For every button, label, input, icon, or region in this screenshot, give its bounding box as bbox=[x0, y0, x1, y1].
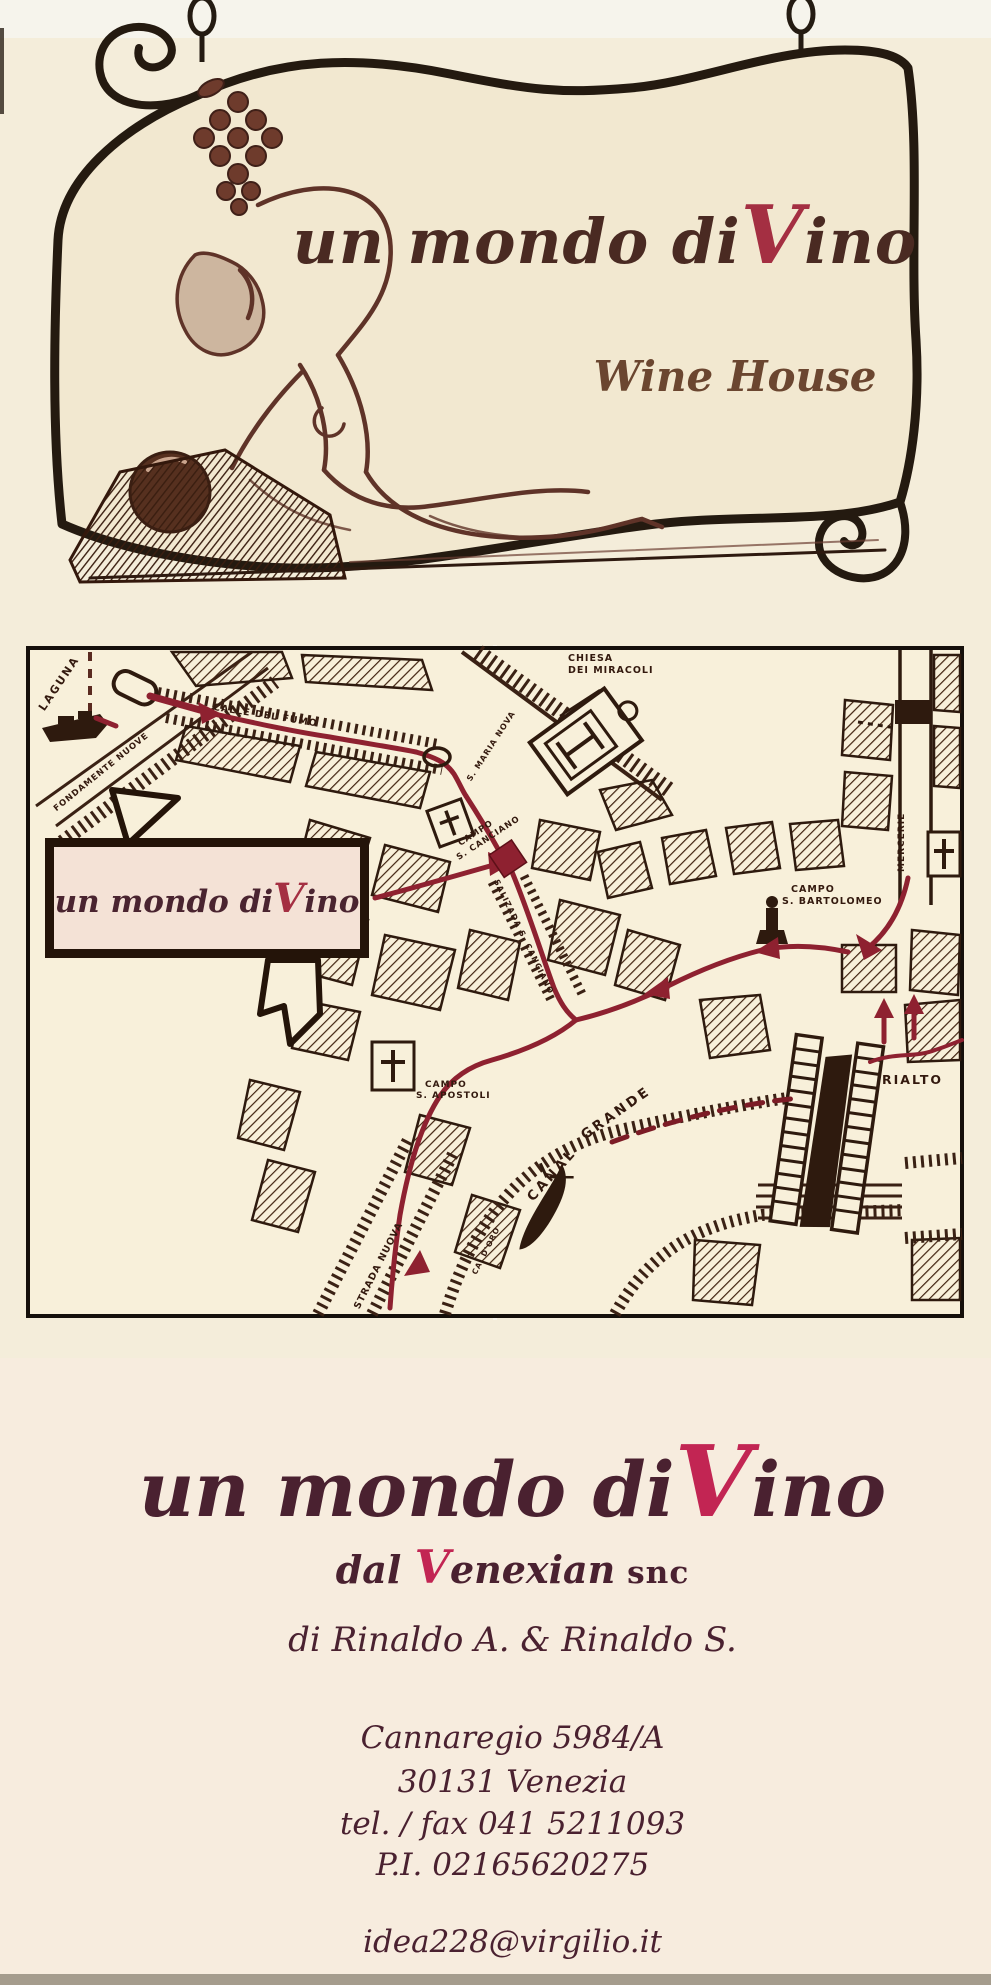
chiesa-line1: CHIESA bbox=[568, 653, 613, 664]
footer-vat-number: P.I. 02165620275 bbox=[0, 1847, 991, 1883]
map-label-campo-apostoli: CAMPO S. APOSTOLI bbox=[416, 1080, 491, 1103]
shop-label-suffix: ino bbox=[304, 884, 359, 920]
hanging-ring-left-icon bbox=[190, 0, 214, 62]
bartolomeo-line2: S. BARTOLOMEO bbox=[782, 896, 883, 907]
apostoli-line2: S. APOSTOLI bbox=[416, 1091, 491, 1101]
map-label-chiesa-miracoli: CHIESA DEI MIRACOLI bbox=[568, 653, 654, 677]
tagline-snc: snc bbox=[615, 1555, 689, 1591]
tagline-red-v: V bbox=[415, 1540, 450, 1594]
sign-subtitle: Wine House bbox=[540, 352, 930, 401]
scroll-left-curl bbox=[99, 27, 196, 105]
hanging-sign-art bbox=[55, 0, 917, 582]
tagline-dal: dal bbox=[336, 1547, 415, 1592]
church-merceria-icon bbox=[928, 832, 960, 876]
shop-label-text: un mondo diVino bbox=[55, 874, 360, 922]
footer-email: idea228@virgilio.it bbox=[0, 1924, 991, 1960]
apostoli-line1: CAMPO bbox=[416, 1080, 491, 1091]
sign-title: un mondo diVino bbox=[280, 188, 930, 283]
footer-owners: di Rinaldo A. & Rinaldo S. bbox=[0, 1620, 991, 1660]
footer-phone: tel. / fax 041 5211093 bbox=[0, 1806, 991, 1842]
map-label-mercerie: MERCERIE bbox=[897, 813, 908, 872]
shop-label-prefix: un mondo di bbox=[55, 884, 273, 920]
footer-address-line2: 30131 Venezia bbox=[0, 1764, 991, 1800]
sign-title-suffix: ino bbox=[804, 205, 917, 278]
map-label-campo-bartolomeo: CAMPO S. BARTOLOMEO bbox=[782, 884, 883, 908]
chiesa-line2: DEI MIRACOLI bbox=[568, 665, 654, 676]
footer-address-line1: Cannaregio 5984/A bbox=[0, 1720, 991, 1756]
map-label-rialto: RIALTO bbox=[882, 1072, 943, 1088]
shop-label-red-v: V bbox=[273, 874, 304, 922]
scanned-business-card: un mondo diVino Wine House LAGUNA FONDAM… bbox=[0, 0, 991, 1985]
bartolomeo-line1: CAMPO bbox=[782, 884, 883, 896]
church-s-apostoli-icon bbox=[372, 1042, 414, 1090]
footer-brand-suffix: ino bbox=[751, 1445, 886, 1534]
footer-brand: un mondo diVino bbox=[0, 1424, 991, 1540]
shop-label-box: un mondo diVino bbox=[45, 838, 369, 958]
tagline-rest: enexian bbox=[450, 1547, 615, 1592]
sign-title-prefix: un mondo di bbox=[293, 205, 741, 278]
footer-brand-red-v: V bbox=[675, 1424, 752, 1540]
sign-title-red-v: V bbox=[741, 188, 805, 283]
footer-brand-prefix: un mondo di bbox=[139, 1445, 675, 1534]
footer-tagline: dal Venexian snc bbox=[0, 1540, 991, 1594]
card-artwork bbox=[0, 0, 991, 1985]
